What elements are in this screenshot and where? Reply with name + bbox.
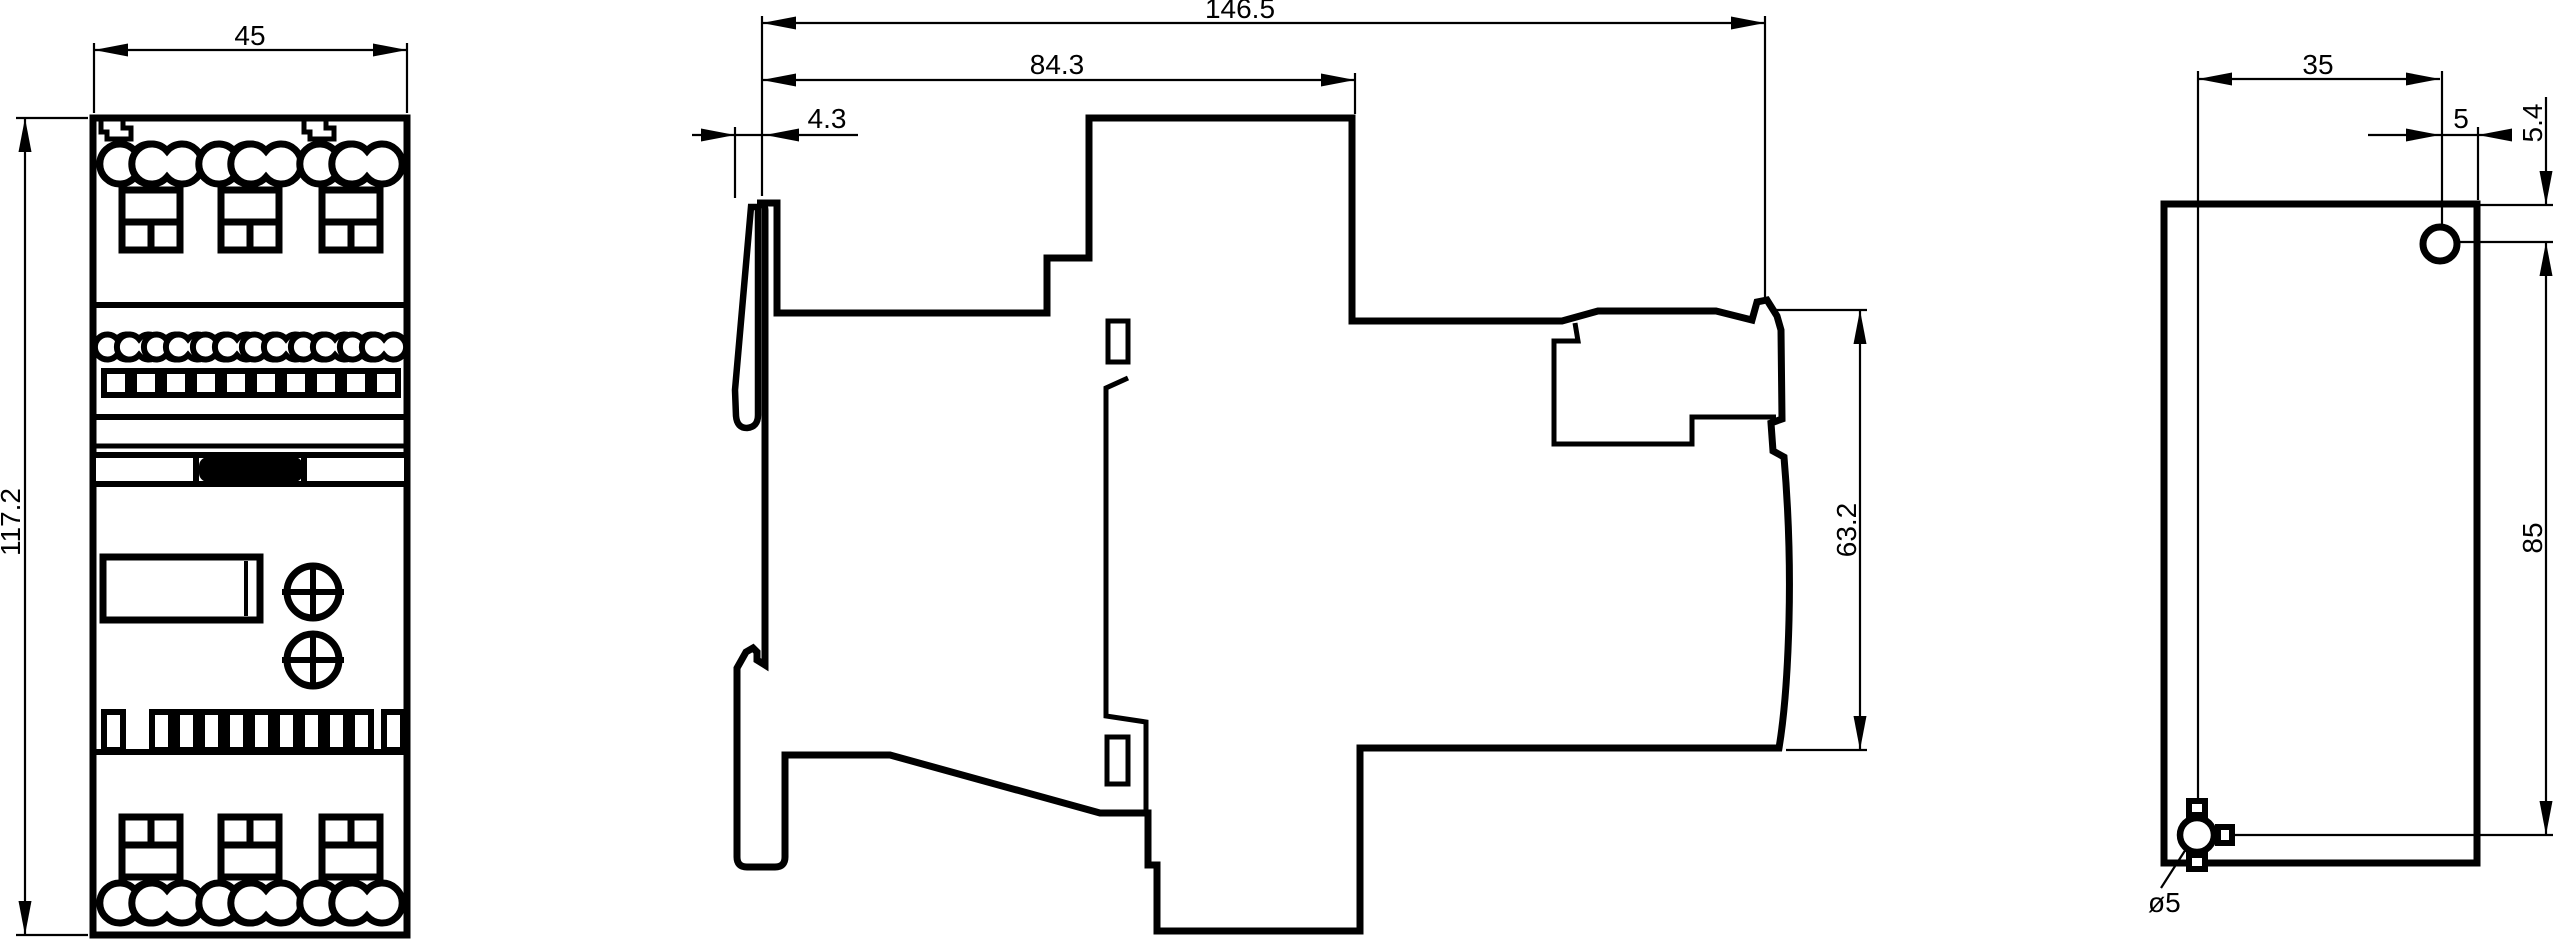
- dimensional-drawing: 45 117.2 146.5: [0, 0, 2553, 939]
- dim-side-body-depth: 84.3: [762, 49, 1355, 114]
- dim-rear-hole-diameter-label: ø5: [2148, 887, 2181, 918]
- display-window: [103, 557, 260, 620]
- front-flange-blade: [735, 207, 758, 428]
- screw-icon: [282, 566, 344, 618]
- top-latch-right: [304, 121, 334, 139]
- terminal-block: [199, 144, 301, 250]
- dim-rear-hole-spacing-y-label: 85: [2517, 522, 2548, 553]
- control-terminal-row: [95, 335, 406, 360]
- mounting-hole-top: [2423, 227, 2457, 261]
- dim-rear-hole-spacing-x-label: 35: [2302, 49, 2333, 80]
- vent-slot-row: [104, 712, 403, 750]
- rear-mounting-view: 35 5 5.4 85 ø5: [2148, 49, 2553, 918]
- terminal-block: [300, 144, 402, 250]
- label-band: [93, 455, 407, 484]
- dim-side-body-depth-label: 84.3: [1030, 49, 1085, 80]
- dim-side-mounting-height-label: 63.2: [1831, 503, 1862, 558]
- side-profile-outline: [737, 118, 1789, 931]
- terminal-block: [100, 144, 202, 250]
- screw-icon: [282, 634, 344, 686]
- rear-view-outline: [2164, 204, 2477, 863]
- technical-drawing-canvas: 45 117.2 146.5: [0, 0, 2553, 939]
- dim-front-width: 45: [94, 20, 407, 113]
- terminal-block: [300, 817, 402, 923]
- dim-rear-hole-spacing-x: 35: [2198, 49, 2440, 86]
- side-view: 146.5 84.3 4.3 63.2: [692, 0, 1867, 931]
- dim-rear-hole-spacing-y: 85: [2517, 242, 2553, 835]
- dim-side-flange-depth-label: 4.3: [808, 103, 847, 134]
- dim-side-flange-depth: 4.3: [692, 103, 858, 198]
- front-view: 45 117.2: [0, 20, 407, 935]
- dim-front-width-label: 45: [234, 20, 265, 51]
- dim-rear-hole-top: 5.4: [2517, 97, 2553, 276]
- clamp-square-row: [104, 371, 398, 395]
- dim-front-height-label: 117.2: [0, 488, 26, 556]
- terminal-block: [199, 817, 301, 923]
- dim-front-height: 117.2: [0, 118, 88, 935]
- brand-plate: [199, 457, 303, 482]
- dim-side-overall-depth-label: 146.5: [1205, 0, 1275, 24]
- dim-rear-hole-top-label: 5.4: [2517, 104, 2548, 143]
- top-latch-left: [101, 121, 131, 139]
- terminal-block: [100, 817, 202, 923]
- dim-rear-hole-edge-label: 5: [2453, 103, 2469, 134]
- dim-rear-hole-edge: 5: [2368, 103, 2512, 142]
